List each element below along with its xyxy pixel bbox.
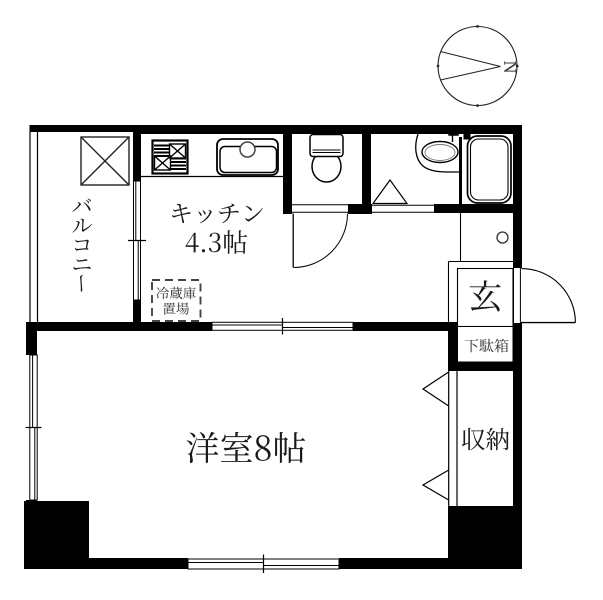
- svg-text:N: N: [500, 61, 520, 74]
